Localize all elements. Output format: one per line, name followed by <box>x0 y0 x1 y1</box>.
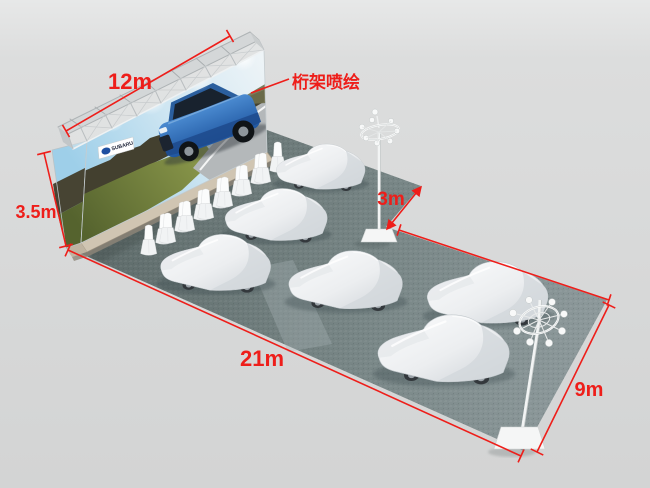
label-truss-width: 12m <box>108 69 152 94</box>
label-floor-length: 21m <box>240 346 284 371</box>
booth-3d-render: SUBARU <box>0 0 650 488</box>
pole-base <box>494 427 545 449</box>
scene-canvas: SUBARU <box>0 0 650 488</box>
label-truss-banner: 桁架喷绘 <box>292 72 360 92</box>
label-floor-depth: 9m <box>575 379 604 401</box>
label-side-offset: 3m <box>377 189 404 210</box>
pole-base <box>361 229 397 242</box>
label-wall-height: 3.5m <box>15 202 56 222</box>
